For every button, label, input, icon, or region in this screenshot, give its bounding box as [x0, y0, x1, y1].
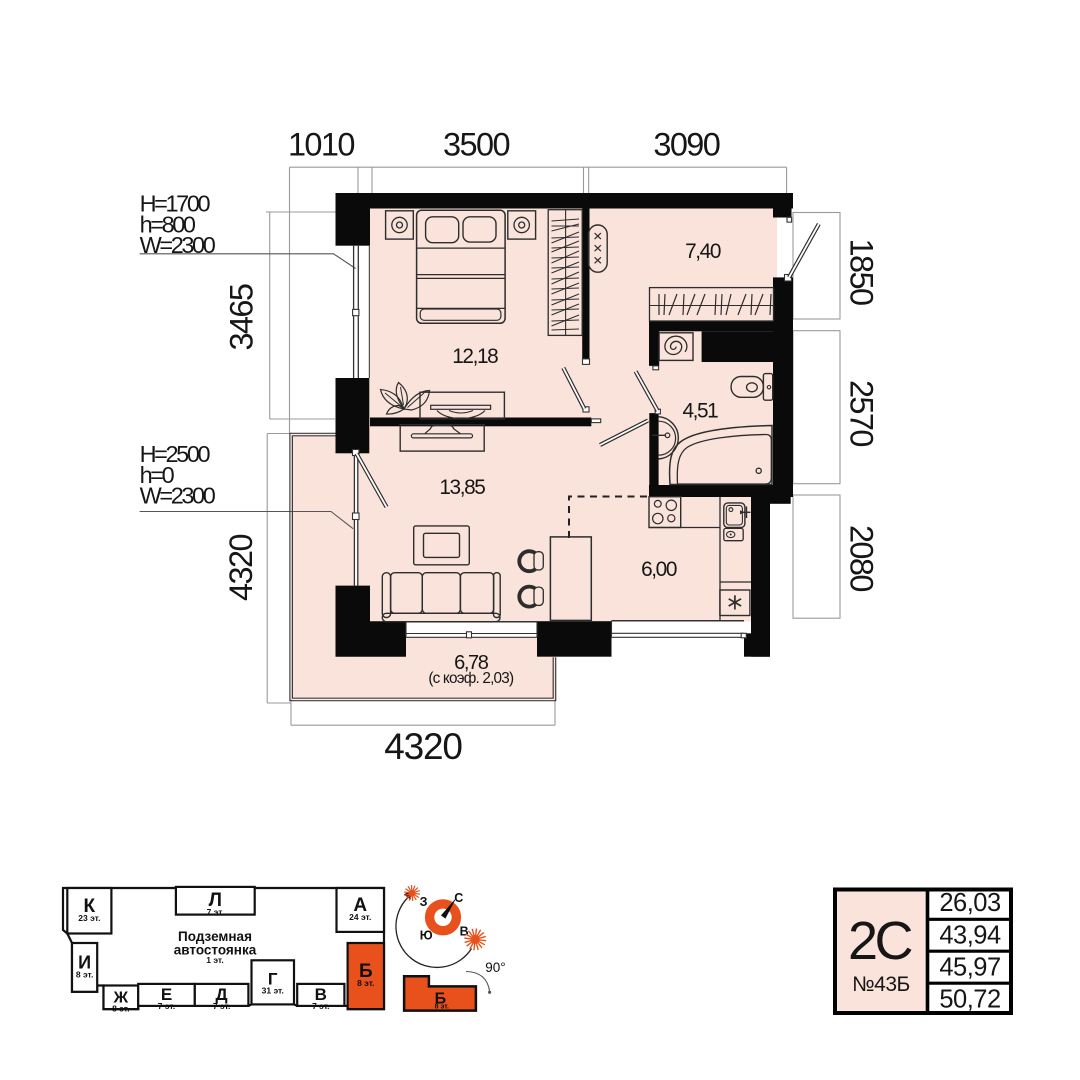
svg-text:8 эт.: 8 эт. — [357, 978, 374, 988]
svg-text:26,03: 26,03 — [939, 889, 1001, 917]
svg-text:4320: 4320 — [223, 535, 259, 601]
svg-text:43,94: 43,94 — [939, 922, 1001, 950]
svg-text:1850: 1850 — [844, 239, 880, 305]
svg-text:12,18: 12,18 — [452, 345, 498, 368]
svg-text:№43Б: №43Б — [852, 973, 910, 996]
svg-text:(с коэф. 2,03): (с коэф. 2,03) — [428, 670, 514, 687]
svg-text:3465: 3465 — [224, 284, 260, 350]
svg-text:8 эт.: 8 эт. — [435, 1003, 449, 1010]
svg-text:З: З — [420, 895, 428, 909]
svg-text:7 эт.: 7 эт. — [312, 1001, 329, 1011]
svg-text:7,40: 7,40 — [685, 240, 721, 263]
svg-text:3090: 3090 — [653, 127, 719, 163]
svg-text:4,51: 4,51 — [682, 399, 718, 422]
svg-text:6,00: 6,00 — [641, 558, 677, 581]
svg-text:1 эт.: 1 эт. — [206, 955, 223, 965]
svg-text:Ю: Ю — [420, 929, 433, 943]
svg-text:90°: 90° — [485, 960, 505, 975]
svg-text:2С: 2С — [848, 911, 912, 971]
svg-text:7 эт.: 7 эт. — [158, 1001, 175, 1011]
svg-text:W=2300: W=2300 — [140, 483, 216, 509]
svg-text:1010: 1010 — [288, 127, 354, 163]
svg-text:W=2300: W=2300 — [140, 232, 216, 258]
svg-text:4320: 4320 — [384, 726, 462, 767]
svg-text:2570: 2570 — [844, 380, 880, 446]
svg-text:7 эт.: 7 эт. — [207, 907, 224, 917]
svg-text:24 эт.: 24 эт. — [349, 912, 371, 922]
svg-text:В: В — [460, 925, 469, 939]
svg-text:8 эт.: 8 эт. — [76, 969, 93, 979]
svg-text:50,72: 50,72 — [939, 986, 1000, 1014]
svg-text:31 эт.: 31 эт. — [262, 985, 284, 995]
svg-text:С: С — [454, 891, 463, 905]
svg-text:45,97: 45,97 — [939, 954, 1000, 982]
svg-text:3500: 3500 — [443, 127, 509, 163]
svg-text:13,85: 13,85 — [439, 476, 485, 499]
svg-text:8 эт.: 8 эт. — [112, 1003, 129, 1013]
svg-text:7 эт.: 7 эт. — [213, 1001, 230, 1011]
svg-text:23 эт.: 23 эт. — [78, 913, 100, 923]
svg-text:2080: 2080 — [844, 525, 880, 591]
